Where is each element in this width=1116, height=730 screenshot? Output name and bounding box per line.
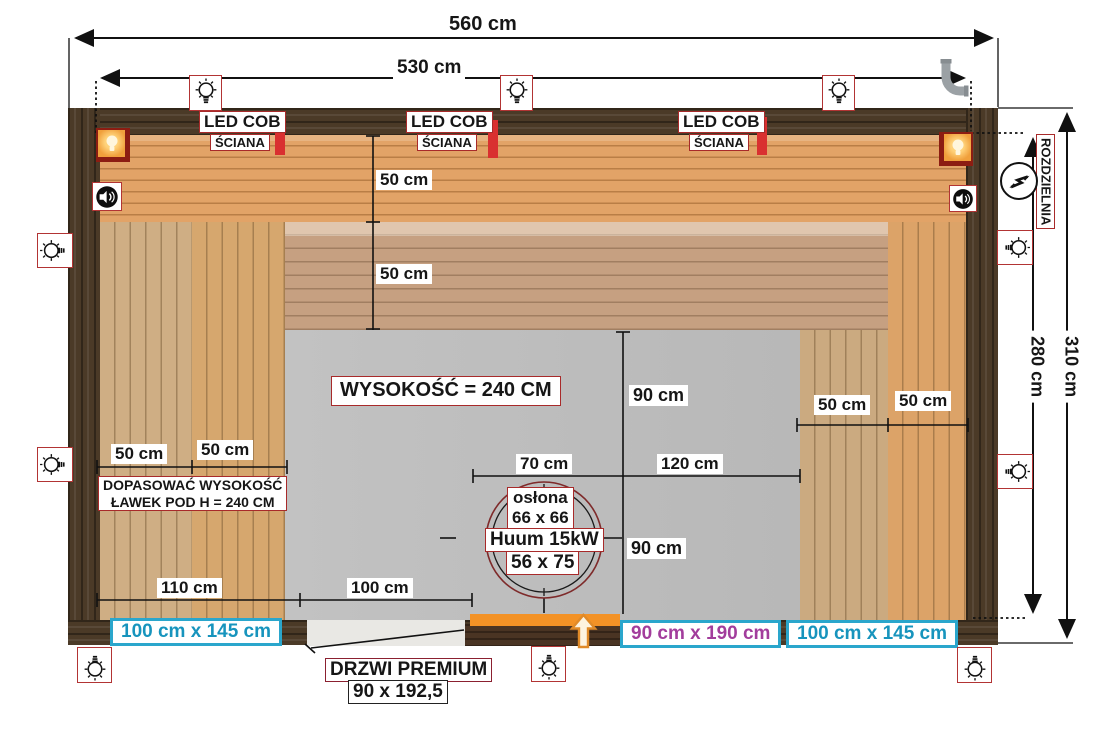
corner-lamp-icon: [939, 132, 973, 166]
dim-label-bench-depth: 50 cm: [895, 391, 951, 411]
bulb-glyph: [1000, 458, 1031, 486]
light-bulb-icon: [822, 75, 855, 111]
dim-label-bench-depth: 50 cm: [376, 264, 432, 284]
bulb-glyph: [192, 78, 220, 109]
sciana-label: ŚCIANA: [689, 134, 749, 151]
heater-model-label: Huum 15kW: [485, 528, 604, 552]
dim-label-70: 70 cm: [516, 454, 572, 474]
window-right-label: 100 cm x 145 cm: [786, 620, 958, 648]
window-left-label: 100 cm x 145 cm: [110, 618, 282, 646]
bulb-glyph: [961, 650, 989, 681]
led-cob-label: LED COB: [406, 111, 493, 133]
glass-panel-label: 90 cm x 190 cm: [620, 620, 781, 648]
bench-height-note-label: DOPASOWAĆ WYSOKOŚĆ ŁAWEK POD H = 240 CM: [98, 476, 287, 511]
bench-note-line1: DOPASOWAĆ WYSOKOŚĆ: [103, 477, 282, 494]
lamp-bulb-glyph: [103, 133, 121, 155]
dim-label-530: 530 cm: [393, 57, 465, 79]
speaker-glyph: [95, 185, 119, 209]
led-cob-label: LED COB: [678, 111, 765, 133]
bulb-glyph: [503, 78, 531, 109]
bulb-glyph: [40, 451, 71, 479]
corner-lamp-icon: [96, 128, 130, 162]
dim-label-bench-depth: 50 cm: [197, 440, 253, 460]
door-size-label: 90 x 192,5: [348, 680, 448, 704]
light-bulb-icon: [997, 454, 1033, 489]
light-bulb-icon: [500, 75, 533, 111]
heater-base-size-label: 56 x 75: [506, 551, 579, 575]
light-bulb-icon: [37, 447, 73, 482]
dim-label-90-bottom: 90 cm: [627, 538, 686, 559]
heater-cover-name: osłona: [512, 488, 569, 508]
dim-label-560: 560 cm: [445, 13, 521, 37]
arrow-glyph: [569, 613, 598, 650]
dim-label-120: 120 cm: [657, 454, 723, 474]
led-cob-label: LED COB: [199, 111, 286, 133]
speaker-icon: [949, 185, 977, 212]
speaker-glyph: [952, 188, 974, 210]
bulb-glyph: [1000, 234, 1031, 262]
heater-cover-label: osłona 66 x 66: [507, 487, 574, 529]
rozdzielnia-label: ROZDZIELNIA: [1036, 134, 1055, 229]
lamp-bulb-glyph: [949, 137, 967, 159]
sciana-label: ŚCIANA: [210, 134, 270, 151]
bulb-glyph: [825, 78, 853, 109]
bulb-glyph: [81, 650, 109, 681]
electrical-panel-icon: [1000, 162, 1038, 200]
door-swing-line: [311, 630, 464, 648]
lightning-glyph: [1005, 167, 1033, 195]
light-bulb-icon: [997, 230, 1033, 265]
door-name-label: DRZWI PREMIUM: [325, 658, 492, 682]
height-note-label: WYSOKOŚĆ = 240 CM: [331, 376, 561, 406]
dim-label-bench-depth: 50 cm: [111, 444, 167, 464]
light-bulb-icon: [77, 647, 112, 683]
dim-label-90-top: 90 cm: [629, 385, 688, 406]
bench-note-line2: ŁAWEK POD H = 240 CM: [103, 494, 282, 511]
sauna-plan-canvas: 560 cm 530 cm LED COB ŚCIANA LED COB ŚCI…: [0, 0, 1116, 730]
dim-label-100: 100 cm: [347, 578, 413, 598]
pipe-glyph: [936, 57, 972, 105]
light-bulb-icon: [531, 646, 566, 682]
bulb-glyph: [535, 649, 563, 680]
vent-pipe-icon: [936, 57, 972, 110]
bulb-glyph: [40, 237, 71, 265]
dim-label-bench-depth: 50 cm: [814, 395, 870, 415]
sciana-label: ŚCIANA: [417, 134, 477, 151]
dim-label-280: 280 cm: [1026, 331, 1047, 403]
dim-label-310: 310 cm: [1060, 331, 1081, 403]
light-bulb-icon: [189, 75, 222, 111]
speaker-icon: [92, 182, 122, 211]
up-arrow-icon: [569, 613, 598, 655]
heater-cover-size: 66 x 66: [512, 508, 569, 528]
light-bulb-icon: [37, 233, 73, 268]
dim-label-bench-depth: 50 cm: [376, 170, 432, 190]
dim-label-110: 110 cm: [157, 578, 222, 598]
light-bulb-icon: [957, 647, 992, 683]
